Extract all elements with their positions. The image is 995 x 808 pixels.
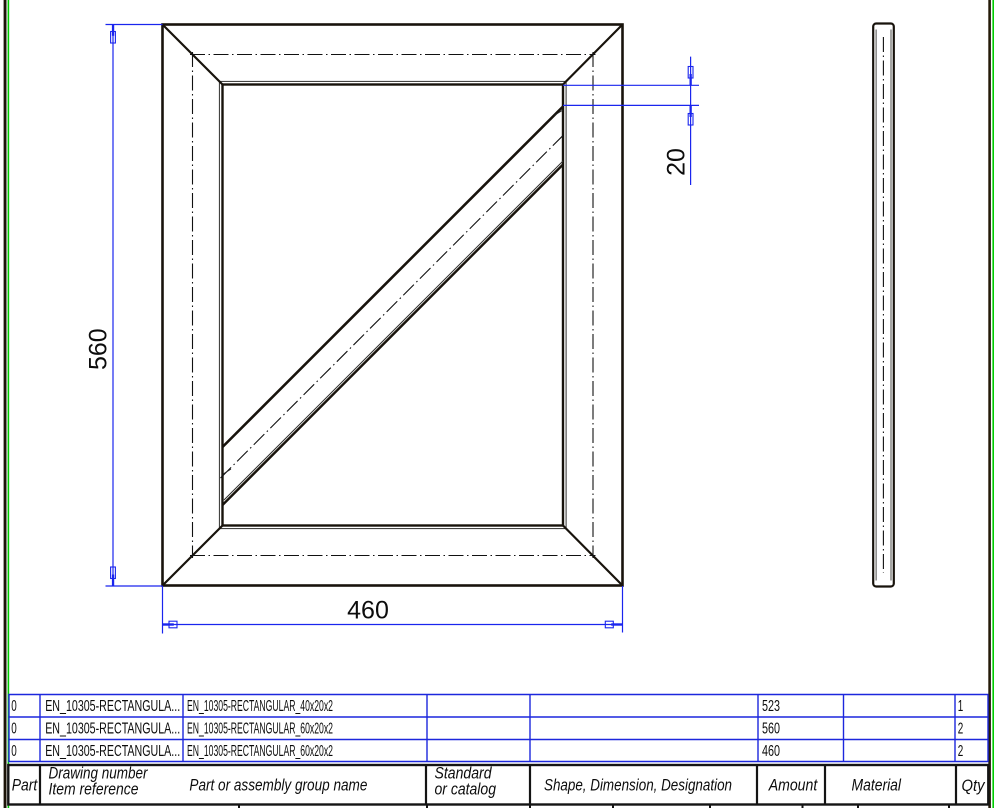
svg-text:20: 20: [663, 148, 691, 176]
svg-text:560: 560: [762, 721, 780, 738]
svg-text:2: 2: [958, 721, 964, 738]
svg-text:EN_10305-RECTANGULA...: EN_10305-RECTANGULA...: [45, 721, 180, 738]
svg-text:EN_10305-RECTANGULAR_40x20x2: EN_10305-RECTANGULAR_40x20x2: [187, 698, 333, 715]
svg-text:Shape, Dimension, Designation: Shape, Dimension, Designation: [544, 777, 732, 795]
svg-text:Part or assembly group name: Part or assembly group name: [189, 777, 367, 795]
svg-text:EN_10305-RECTANGULA...: EN_10305-RECTANGULA...: [45, 698, 180, 715]
svg-text:460: 460: [762, 743, 780, 760]
svg-text:560: 560: [85, 328, 113, 370]
svg-text:EN_10305-RECTANGULA...: EN_10305-RECTANGULA...: [45, 743, 180, 760]
svg-text:EN_10305-RECTANGULAR_60x20x2: EN_10305-RECTANGULAR_60x20x2: [187, 721, 333, 738]
svg-text:or catalog: or catalog: [435, 781, 497, 799]
svg-text:EN_10305-RECTANGULAR_60x20x2: EN_10305-RECTANGULAR_60x20x2: [187, 743, 333, 760]
svg-text:0: 0: [11, 721, 17, 738]
svg-text:Material: Material: [852, 777, 903, 795]
svg-text:0: 0: [11, 743, 17, 760]
svg-text:460: 460: [347, 597, 389, 625]
svg-text:Part: Part: [12, 777, 39, 795]
svg-text:0: 0: [11, 698, 17, 715]
svg-text:Item reference: Item reference: [49, 781, 139, 799]
svg-text:2: 2: [958, 743, 964, 760]
svg-text:Amount: Amount: [768, 777, 819, 795]
svg-text:523: 523: [762, 698, 780, 715]
svg-text:1: 1: [958, 698, 964, 715]
svg-text:Qty: Qty: [962, 777, 987, 795]
